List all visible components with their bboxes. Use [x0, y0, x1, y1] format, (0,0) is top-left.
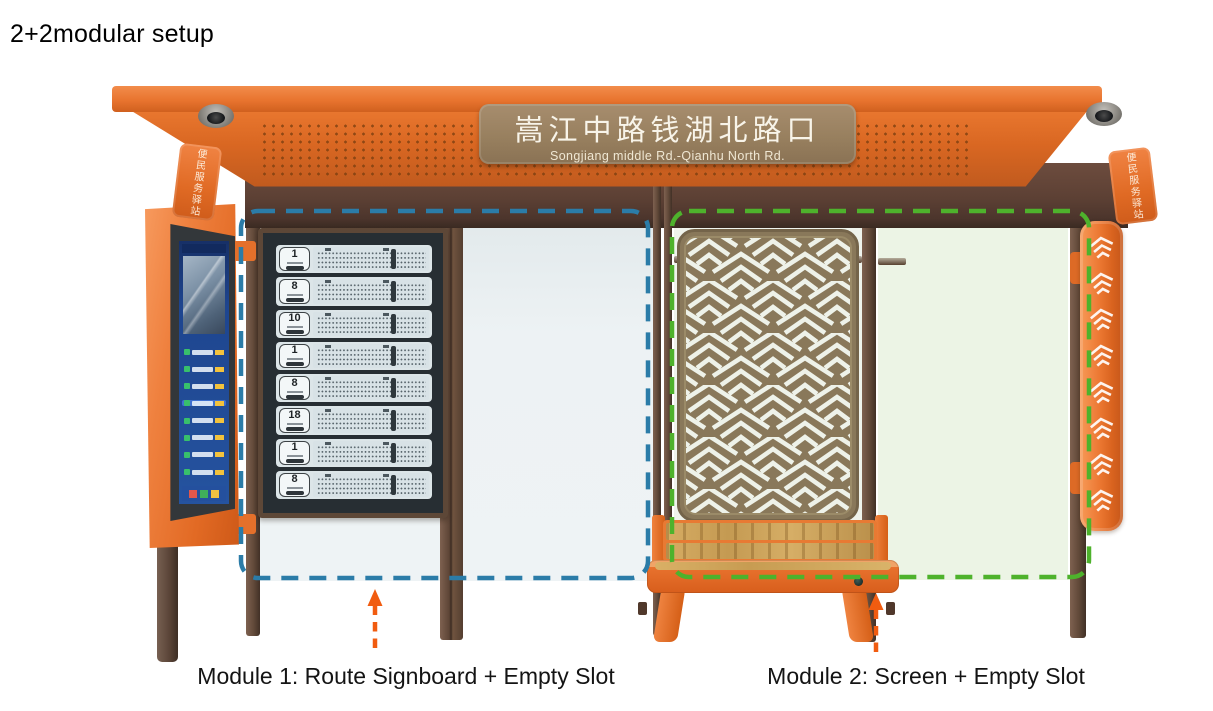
service-sign-left: 便民服务驿站 — [172, 143, 223, 222]
dome-camera-icon — [1086, 102, 1122, 126]
screen-photo — [183, 256, 226, 334]
mount-rail — [878, 258, 906, 265]
route-number: 8 — [291, 281, 297, 292]
route-dot-icon — [184, 383, 190, 389]
kiosk-bezel — [170, 219, 235, 525]
page-title: 2+2modular setup — [10, 20, 214, 49]
lattice-panel — [677, 229, 859, 522]
service-sign-right-text: 便民服务驿站 — [1121, 151, 1144, 221]
kiosk-pole — [157, 540, 178, 662]
dome-camera-icon — [198, 104, 234, 128]
route-dot-icon — [184, 400, 190, 406]
bench-foot — [886, 602, 895, 615]
station-name-en: Songjiang middle Rd.-Qianhu North Rd. — [479, 149, 856, 163]
module2-label: Module 2: Screen + Empty Slot — [710, 663, 1142, 690]
footer-icon — [189, 490, 197, 498]
chevron-up-icon — [1089, 417, 1115, 444]
route-stations — [313, 344, 429, 368]
station-name-zh: 嵩江中路钱湖北路口 — [479, 107, 856, 149]
route-text-bar — [192, 470, 214, 475]
route-number-box: 1 — [279, 441, 310, 465]
route-eta-bar — [215, 350, 224, 355]
route-pill — [286, 362, 304, 366]
route-stations — [313, 408, 429, 432]
route-text-bar — [192, 384, 214, 389]
route-number-box: 18 — [279, 408, 310, 432]
scene: 2+2modular setup 便民服务驿站 便民服务驿站 嵩江中路钱湖北路口… — [0, 0, 1213, 711]
route-dot-icon — [184, 366, 190, 372]
screen-header — [182, 244, 227, 253]
route-text-bar — [192, 418, 214, 423]
route-text-bar — [192, 435, 214, 440]
route-eta-bar — [215, 452, 224, 457]
route-strip: 8 — [276, 277, 432, 305]
module1-label: Module 1: Route Signboard + Empty Slot — [186, 663, 626, 690]
route-eta-bar — [215, 470, 224, 475]
route-number-box: 10 — [279, 312, 310, 336]
chevron-up-icon — [1089, 272, 1115, 299]
route-dot-icon — [184, 435, 190, 441]
route-text-bar — [192, 452, 214, 457]
route-pill — [286, 330, 304, 334]
route-stations — [313, 279, 429, 303]
route-strip: 1 — [276, 342, 432, 370]
route-stations — [313, 441, 429, 465]
bench-foot — [638, 602, 647, 615]
route-strip: 1 — [276, 439, 432, 467]
route-strip: 1 — [276, 245, 432, 273]
screen-route-row — [182, 469, 227, 475]
station-sign: 嵩江中路钱湖北路口 Songjiang middle Rd.-Qianhu No… — [479, 104, 856, 164]
route-pill — [286, 459, 304, 463]
bench-backrest — [663, 520, 877, 562]
route-pill — [286, 395, 304, 399]
bench-slat — [666, 523, 874, 540]
route-eta-bar — [215, 367, 224, 372]
kiosk-screen — [179, 241, 230, 504]
service-sign-right: 便民服务驿站 — [1108, 147, 1159, 226]
screen-footer — [182, 486, 227, 501]
lattice-panel-graphic — [677, 229, 859, 522]
route-eta-bar — [215, 401, 224, 406]
empty-slot-panel-2 — [878, 225, 1068, 580]
route-strips: 1810181818 — [276, 245, 432, 499]
module1-arrowhead — [368, 589, 383, 606]
route-subtext — [287, 487, 303, 489]
screen-route-row — [182, 435, 227, 441]
route-subtext — [287, 391, 303, 393]
screen-route-row — [182, 452, 227, 458]
chevron-up-icon — [1089, 453, 1115, 480]
footer-icon — [211, 490, 219, 498]
screen-route-row — [182, 400, 227, 406]
route-number: 1 — [291, 249, 297, 260]
route-subtext — [287, 294, 303, 296]
route-subtext — [287, 358, 303, 360]
route-eta-bar — [215, 384, 224, 389]
route-subtext — [287, 326, 303, 328]
route-eta-bar — [215, 435, 224, 440]
route-subtext — [287, 423, 303, 425]
route-eta-bar — [215, 418, 224, 423]
side-ad-panel — [1080, 221, 1123, 531]
route-pill — [286, 266, 304, 270]
route-text-bar — [192, 401, 214, 406]
route-number-box: 8 — [279, 473, 310, 497]
footer-icon — [200, 490, 208, 498]
route-number-box: 8 — [279, 376, 310, 400]
screen-route-row — [182, 418, 227, 424]
route-subtext — [287, 455, 303, 457]
route-strip: 18 — [276, 406, 432, 434]
route-dot-icon — [184, 349, 190, 355]
info-kiosk — [145, 204, 239, 548]
route-number: 18 — [288, 410, 300, 421]
route-number-box: 8 — [279, 279, 310, 303]
service-sign-left-text: 便民服务驿站 — [185, 147, 208, 217]
route-number: 8 — [291, 378, 297, 389]
route-signboard: 1810181818 — [258, 228, 448, 518]
screen-route-row — [182, 366, 227, 372]
route-stations — [313, 376, 429, 400]
route-dot-icon — [184, 418, 190, 424]
bench-seat — [647, 560, 899, 593]
route-number-box: 1 — [279, 247, 310, 271]
route-number: 8 — [291, 474, 297, 485]
chevron-up-icon — [1089, 344, 1115, 371]
route-number: 1 — [291, 345, 297, 356]
chevron-up-icon — [1089, 489, 1115, 516]
route-pill — [286, 491, 304, 495]
route-strip: 8 — [276, 374, 432, 402]
route-text-bar — [192, 350, 214, 355]
bench-knob — [854, 577, 863, 586]
route-text-bar — [192, 367, 214, 372]
route-dot-icon — [184, 469, 190, 475]
route-pill — [286, 427, 304, 431]
route-dot-icon — [184, 452, 190, 458]
bench-slat — [666, 543, 874, 560]
route-pill — [286, 298, 304, 302]
chevron-up-icon — [1089, 308, 1115, 335]
chevron-up-icon — [1089, 236, 1115, 263]
route-strip: 8 — [276, 471, 432, 499]
route-number: 1 — [291, 442, 297, 453]
route-stations — [313, 312, 429, 336]
route-stations — [313, 473, 429, 497]
chevron-up-icon — [1089, 381, 1115, 408]
screen-route-row — [182, 349, 227, 355]
route-stations — [313, 247, 429, 271]
route-number: 10 — [288, 313, 300, 324]
route-subtext — [287, 262, 303, 264]
screen-route-list — [182, 338, 227, 486]
route-strip: 10 — [276, 310, 432, 338]
screen-route-row — [182, 383, 227, 389]
route-number-box: 1 — [279, 344, 310, 368]
